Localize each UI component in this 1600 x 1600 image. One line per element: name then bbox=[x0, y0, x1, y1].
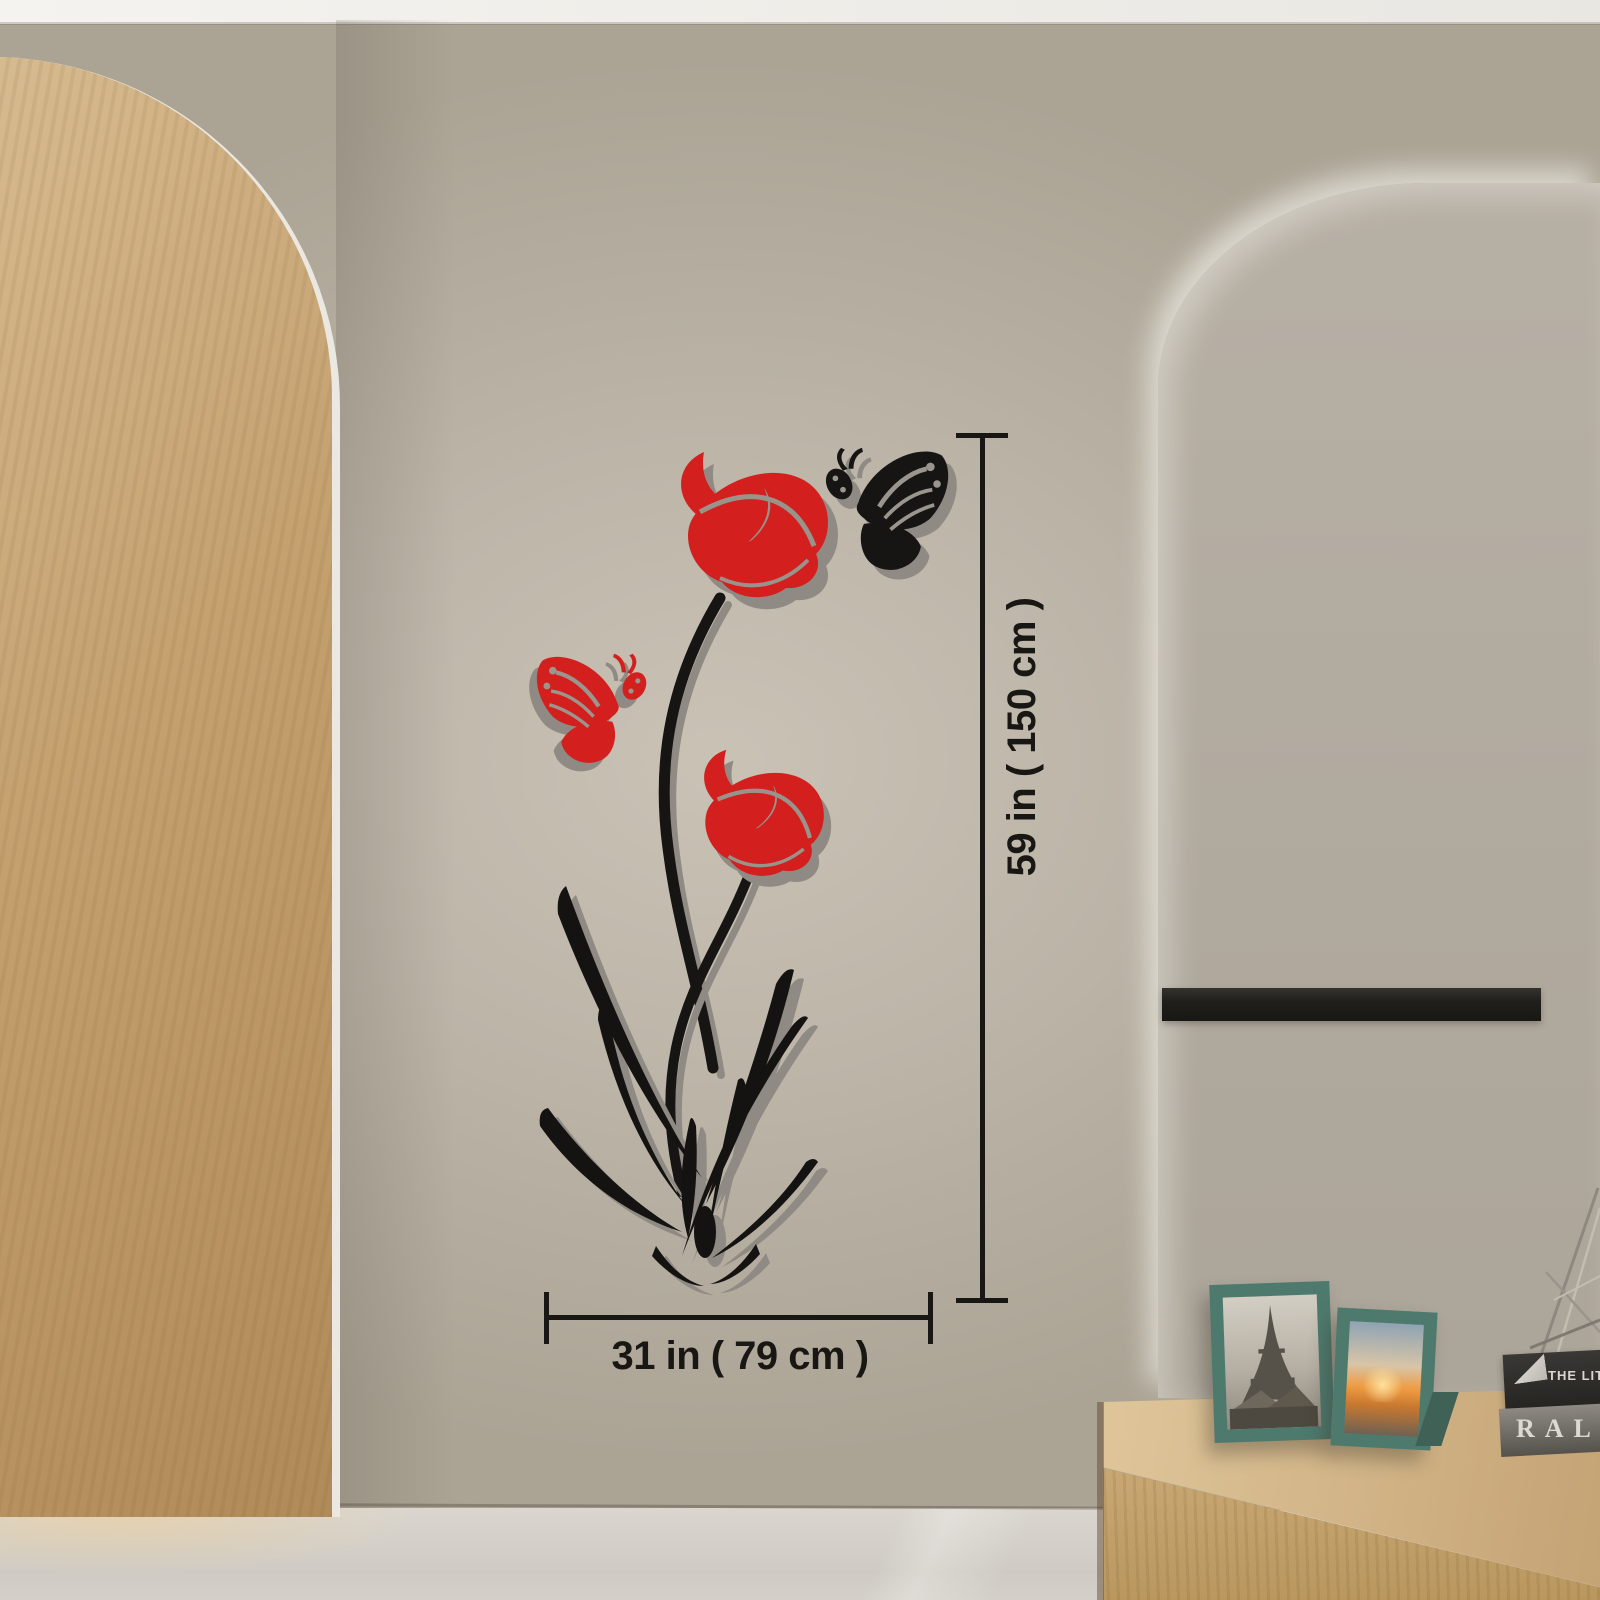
sunset-photo bbox=[1344, 1321, 1424, 1437]
arch-wood-frame bbox=[0, 57, 332, 1517]
width-dimension-right-tick bbox=[928, 1292, 933, 1344]
width-dimension-left-tick bbox=[544, 1292, 549, 1344]
width-dimension-line bbox=[546, 1315, 932, 1320]
room-scene: 59 in ( 150 cm ) 31 in ( 79 cm ) THE LIT… bbox=[0, 0, 1600, 1600]
height-dimension-line bbox=[980, 437, 985, 1303]
black-wall-ledge bbox=[1162, 988, 1541, 1021]
height-dimension-top-tick bbox=[956, 433, 1008, 438]
height-dimension-label: 59 in ( 150 cm ) bbox=[1000, 572, 1050, 902]
red-butterfly bbox=[529, 654, 651, 772]
book-spine-text: THE LITTLE B bbox=[1548, 1368, 1600, 1383]
picture-frame-eiffel bbox=[1209, 1281, 1334, 1443]
width-dimension-label: 31 in ( 79 cm ) bbox=[555, 1334, 925, 1379]
flower-wall-decal bbox=[420, 420, 1060, 1400]
height-dimension-bottom-tick bbox=[956, 1298, 1008, 1303]
black-butterfly bbox=[821, 448, 957, 580]
ceiling-wall-edge bbox=[0, 22, 1600, 25]
red-lily-upper bbox=[681, 452, 838, 609]
wire-sailboat-sculpture bbox=[1500, 1180, 1600, 1370]
red-lily-lower bbox=[693, 748, 838, 893]
book-spine-text: RALPH bbox=[1516, 1414, 1600, 1444]
sideboard-left-edge bbox=[1097, 1402, 1104, 1600]
ceiling bbox=[0, 0, 1600, 24]
eiffel-photo bbox=[1223, 1294, 1322, 1429]
